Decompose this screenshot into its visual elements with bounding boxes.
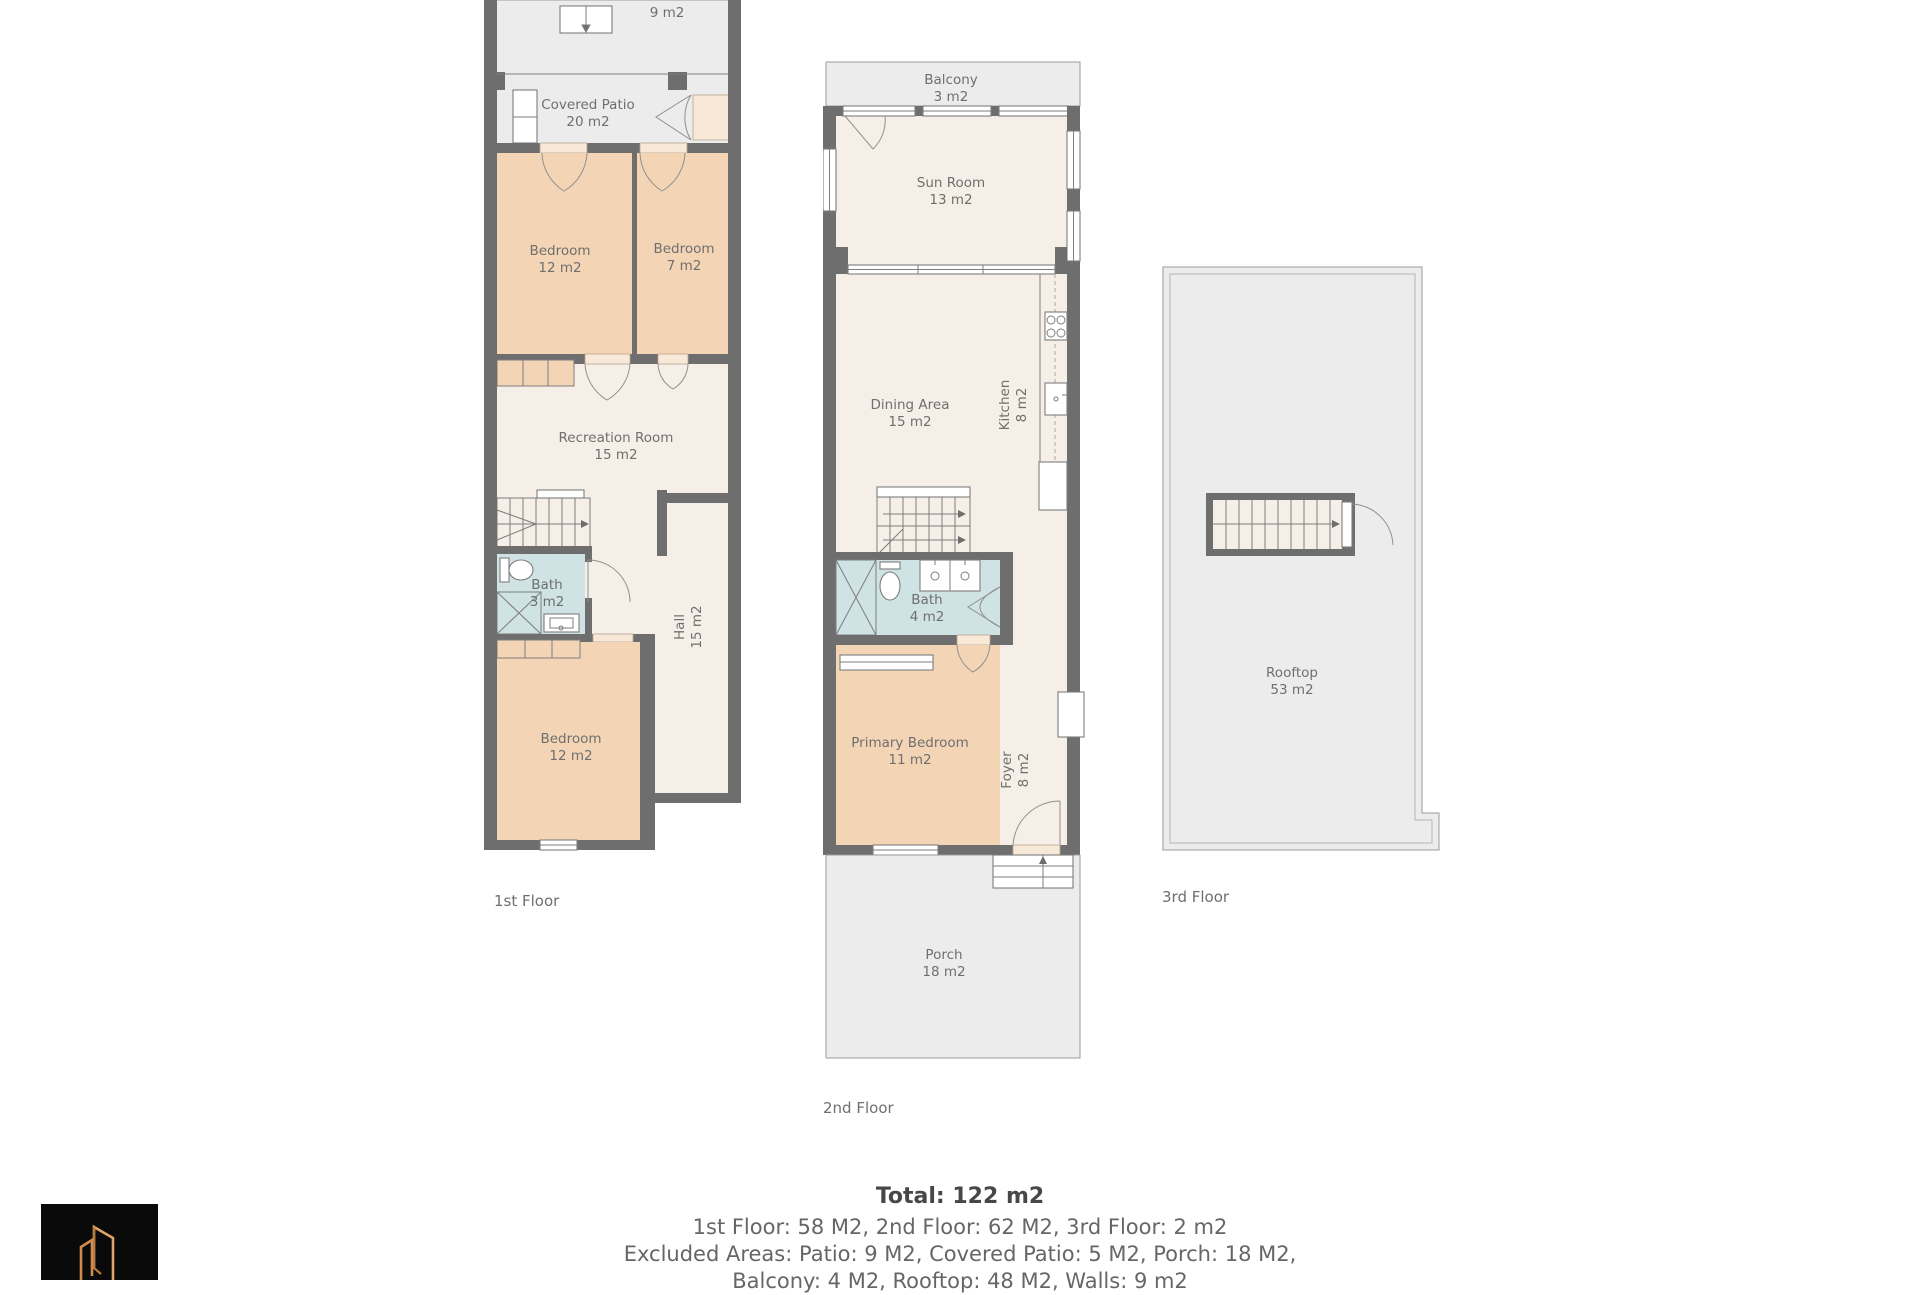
stairs-down-icon (560, 6, 612, 33)
toilet-icon (880, 562, 900, 600)
summary-total: Total: 122 m2 (0, 1184, 1920, 1210)
entry-pad (693, 95, 732, 140)
brand-logo (41, 1204, 158, 1280)
summary-line-3: Balcony: 4 M2, Rooftop: 48 M2, Walls: 9 … (0, 1268, 1920, 1295)
toilet-icon (500, 558, 533, 582)
wall-unit-icon (1058, 692, 1084, 737)
fridge-icon (1039, 462, 1067, 510)
floor-title-2: 2nd Floor (823, 1099, 894, 1117)
third-floor-drawing (1160, 264, 1445, 864)
room-label-bedroom-7: Bedroom7 m2 (653, 241, 714, 275)
floorplan-page: { "colors": { "wall": "#6e6e6e", "floor"… (0, 0, 1920, 1280)
window-icon (540, 840, 577, 850)
room-label-patio: Patio9 m2 (650, 0, 685, 22)
room-label-rooftop: Rooftop53 m2 (1266, 665, 1318, 699)
room-label-bedroom-12: Bedroom12 m2 (529, 243, 590, 277)
window-icon (843, 106, 1069, 116)
rooftop-area (1163, 267, 1439, 850)
summary-line-2: Excluded Areas: Patio: 9 M2, Covered Pat… (0, 1241, 1920, 1268)
room-label-foyer: Foyer8 m2 (999, 751, 1033, 788)
room-label-bath-1: Bath3 m2 (530, 577, 565, 611)
room-label-bedroom-lower: Bedroom12 m2 (540, 731, 601, 765)
window-icon (873, 845, 938, 855)
building-logo-icon (41, 1204, 158, 1280)
closet-icon (840, 655, 933, 670)
room-label-primary-bedroom: Primary Bedroom11 m2 (851, 735, 969, 769)
window-icon (848, 265, 1055, 274)
closet-icon (497, 640, 580, 658)
room-label-sun-room: Sun Room13 m2 (917, 175, 985, 209)
closet-icon (497, 360, 574, 386)
floor-title-3: 3rd Floor (1162, 888, 1229, 906)
room-label-dining-area: Dining Area15 m2 (871, 397, 950, 431)
second-floor-drawing (823, 59, 1085, 1064)
sink-icon (1045, 383, 1067, 415)
stove-icon (1045, 312, 1067, 340)
room-label-recreation-room: Recreation Room15 m2 (559, 430, 674, 464)
entry-steps-icon (993, 855, 1073, 888)
room-label-porch: Porch18 m2 (922, 947, 965, 981)
room-label-covered-patio: Covered Patio20 m2 (541, 97, 635, 131)
summary-line-1: 1st Floor: 58 M2, 2nd Floor: 62 M2, 3rd … (0, 1214, 1920, 1241)
room-label-bath-2: Bath4 m2 (910, 592, 945, 626)
room-label-kitchen: Kitchen8 m2 (997, 380, 1031, 431)
floor-title-1: 1st Floor (494, 892, 559, 910)
closet-icon (513, 90, 537, 143)
area-summary: Total: 122 m2 1st Floor: 58 M2, 2nd Floo… (0, 1184, 1920, 1295)
room-label-hall: Hall15 m2 (672, 605, 706, 648)
sink-icon (544, 614, 579, 632)
double-sink-icon (920, 560, 980, 591)
room-label-balcony: Balcony3 m2 (924, 72, 978, 106)
